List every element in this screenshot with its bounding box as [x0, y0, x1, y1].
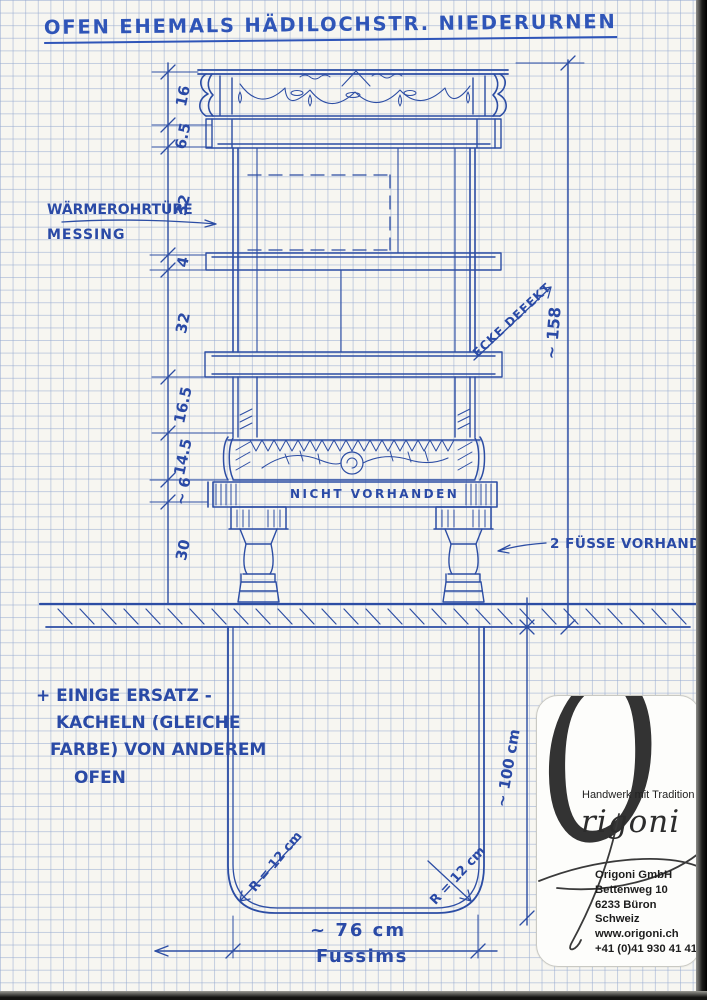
scanned-sketch-page: { "title": "OFEN EHEMALS HÄDILOCHSTR. NI… — [0, 0, 707, 1000]
stamp-city: 6233 Büron — [595, 898, 697, 913]
page-title: OFEN EHEMALS HÄDILOCHSTR. NIEDERURNEN — [44, 10, 617, 44]
feet-present-label: 2 FÜSSE VORHANDEN — [550, 536, 707, 552]
stamp-street: Bettenweg 10 — [595, 883, 697, 898]
door-label-line2: MESSING — [47, 227, 125, 243]
stamp-address: Origoni GmbH Bettenweg 10 6233 Büron Sch… — [595, 868, 697, 957]
note-line-4: OFEN — [74, 768, 126, 788]
stamp-country: Schweiz — [595, 912, 697, 927]
scan-edge-bottom — [0, 991, 707, 1000]
stamp-website: www.origoni.ch — [595, 927, 697, 942]
brand-rest: rigoni — [581, 804, 680, 840]
not-present-label: NICHT VORHANDEN — [290, 487, 459, 501]
note-line-2: KACHELN (GLEICHE — [56, 713, 240, 733]
stamp-phone: +41 (0)41 930 41 41 — [595, 942, 697, 957]
width-name: Fussims — [316, 946, 408, 967]
note-line-3: FARBE) VON ANDEREM — [50, 740, 266, 760]
stamp-company: Origoni GmbH — [595, 868, 697, 883]
stamp-tagline: Handwerk mit Tradition — [582, 789, 695, 801]
company-stamp: O Handwerk mit Tradition rigoni Origoni … — [536, 695, 701, 967]
width-value: ~ 76 cm — [310, 920, 406, 941]
door-label-line1: WÄRMEROHRTÜRE — [47, 202, 193, 218]
note-line-1: + EINIGE ERSATZ - — [36, 686, 212, 706]
scan-edge-right — [696, 0, 707, 1000]
